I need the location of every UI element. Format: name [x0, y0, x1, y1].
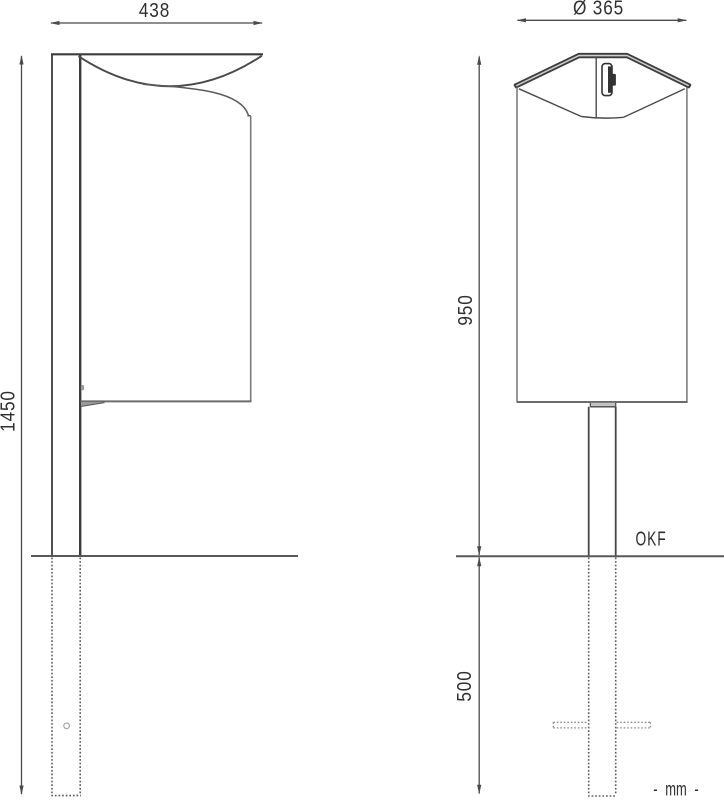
svg-text:500: 500 — [453, 670, 476, 701]
svg-text:OKF: OKF — [635, 527, 666, 550]
svg-text:438: 438 — [139, 0, 170, 21]
svg-text:Ø 365: Ø 365 — [573, 0, 624, 19]
svg-text:1450: 1450 — [0, 390, 19, 432]
svg-text:- mm -: - mm - — [653, 779, 698, 800]
svg-text:950: 950 — [454, 294, 477, 325]
